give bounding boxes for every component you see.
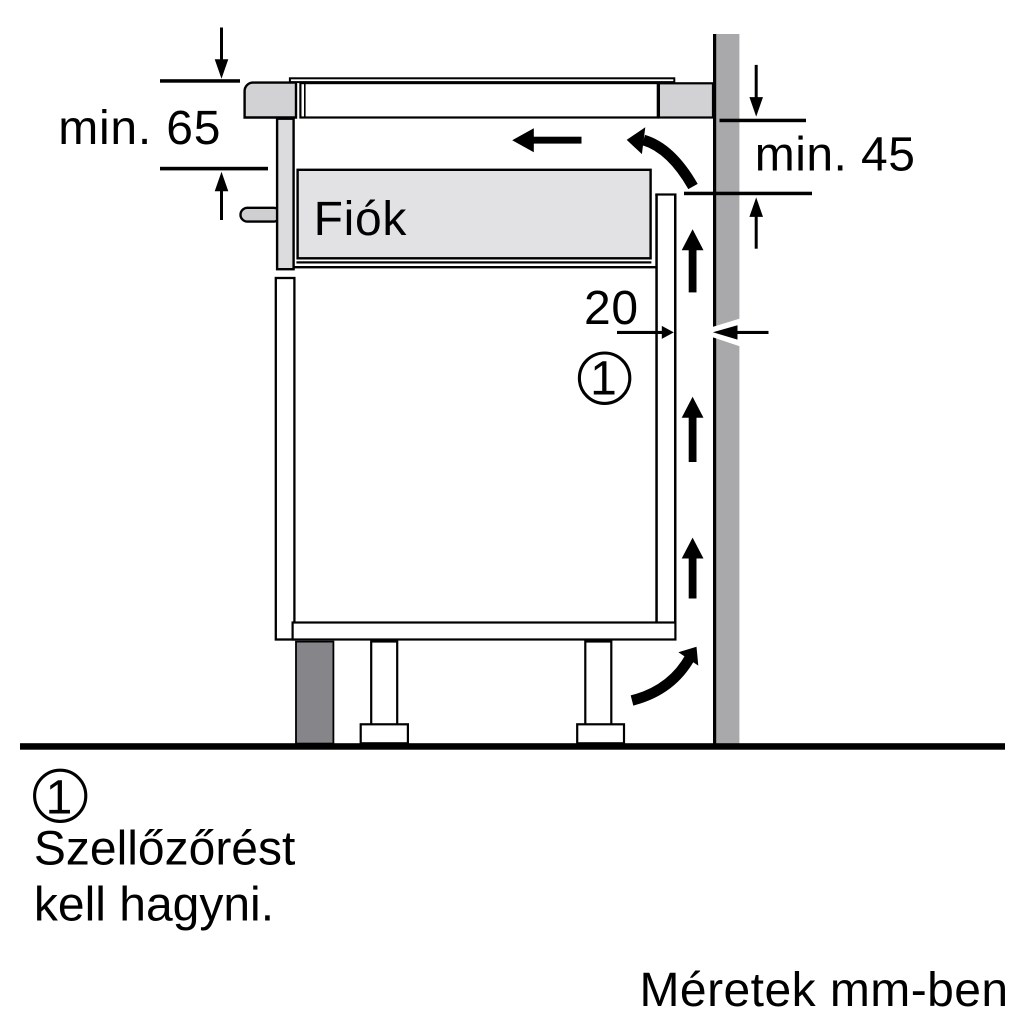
svg-text:Fiók: Fiók	[314, 193, 408, 246]
svg-text:20: 20	[584, 282, 639, 335]
svg-text:1: 1	[590, 353, 617, 406]
svg-text:Méretek mm-ben: Méretek mm-ben	[640, 964, 1009, 1017]
svg-text:Szellőzőrést: Szellőzőrést	[34, 823, 295, 876]
svg-text:min. 65: min. 65	[58, 102, 221, 155]
svg-text:kell hagyni.: kell hagyni.	[34, 879, 274, 932]
svg-text:1: 1	[46, 772, 73, 825]
svg-text:min. 45: min. 45	[755, 129, 916, 182]
